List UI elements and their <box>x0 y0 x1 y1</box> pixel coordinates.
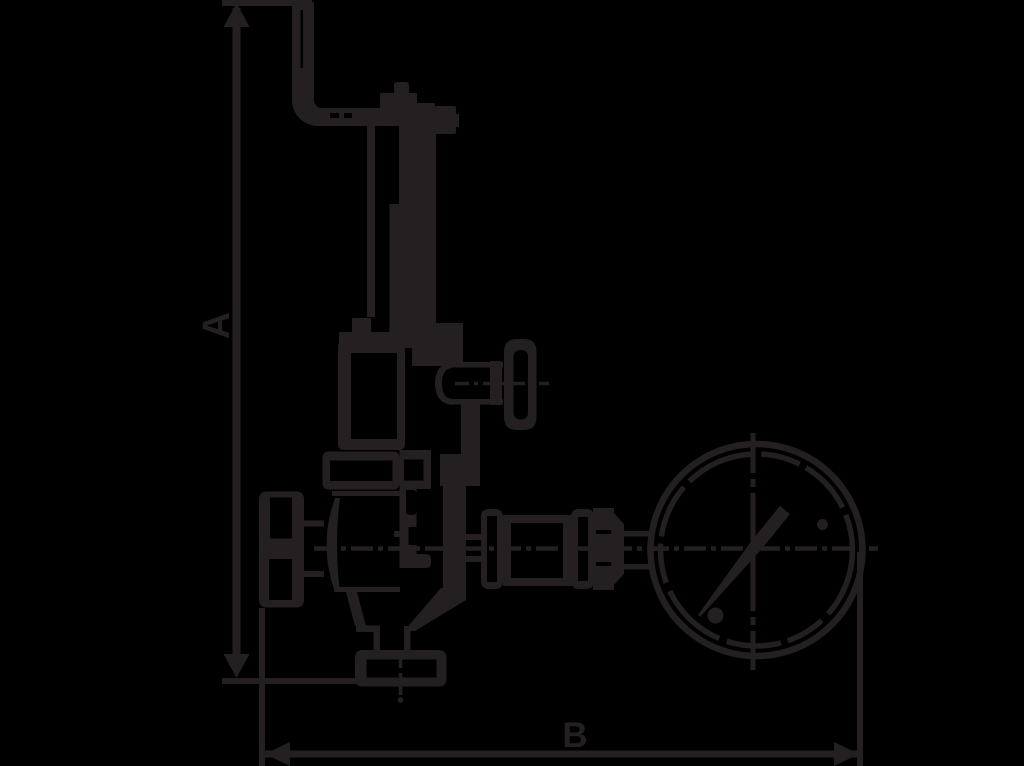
svg-text:A: A <box>196 312 238 339</box>
svg-text:B: B <box>562 716 587 755</box>
